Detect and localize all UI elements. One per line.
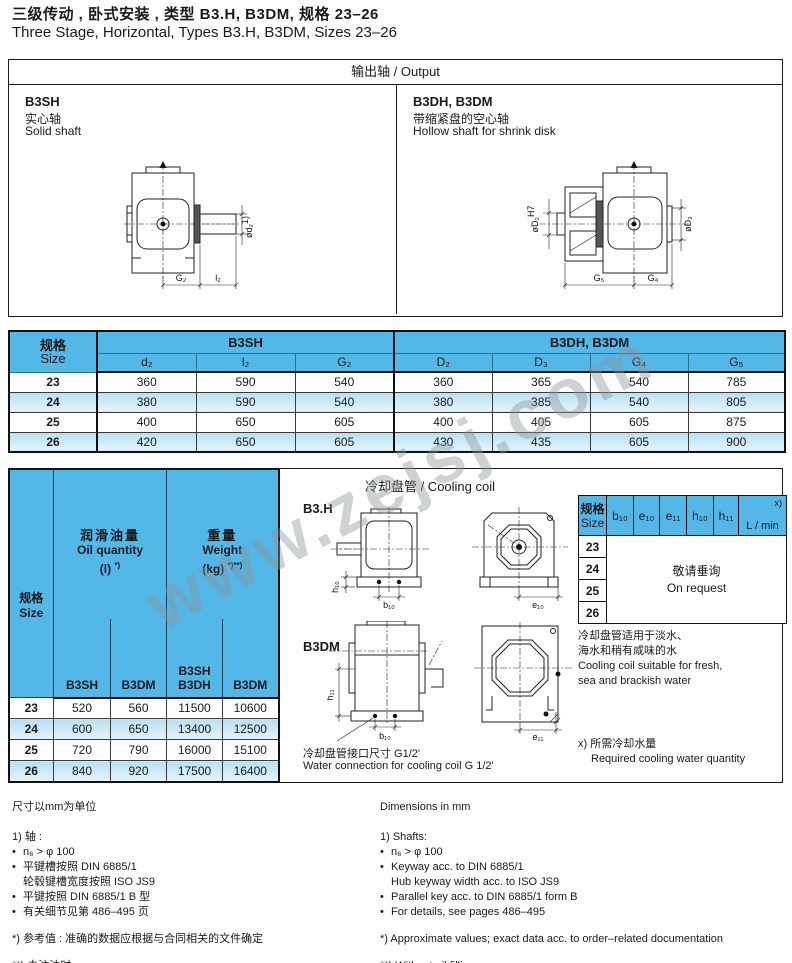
col-header-size: 规格Size bbox=[9, 469, 54, 698]
cell-size: 25 bbox=[579, 580, 607, 602]
shaft-note-head-zh: 1) 轴 : bbox=[12, 830, 372, 845]
cell: 650 bbox=[196, 432, 295, 452]
table-row: 23 敬请垂询On request bbox=[579, 536, 787, 558]
cell-size: 24 bbox=[579, 558, 607, 580]
table-row: 26 840 920 17500 16400 bbox=[9, 761, 279, 782]
cell-size: 24 bbox=[9, 392, 97, 412]
output-section-header: 输出轴 / Output bbox=[9, 60, 782, 85]
col-header-D3: D₃ bbox=[492, 353, 590, 372]
drawing-b3h-side-view: h₁₀ b₁₀ bbox=[329, 507, 434, 609]
footnotes-en: Dimensions in mm 1) Shafts: n₆ > φ 100 K… bbox=[380, 800, 784, 963]
cell: 605 bbox=[590, 432, 688, 452]
label-g2: G₂ bbox=[176, 273, 187, 283]
cell: 380 bbox=[97, 392, 196, 412]
cell: 650 bbox=[111, 719, 167, 740]
cell-size: 25 bbox=[9, 412, 97, 432]
cell: 540 bbox=[590, 372, 688, 392]
col-header-h10: h₁₀ bbox=[687, 496, 714, 536]
group-header-weight: 重量 Weight (kg) *)**) bbox=[167, 469, 279, 619]
cell: 540 bbox=[295, 392, 394, 412]
cell: 435 bbox=[492, 432, 590, 452]
sub-header-b3dm-2: B3DM bbox=[223, 619, 279, 698]
output-shaft-section: 输出轴 / Output B3SH 实心轴 Solid shaft bbox=[8, 59, 783, 317]
table-row: 25 720 790 16000 15100 bbox=[9, 740, 279, 761]
units-note-zh: 尺寸以mm为单位 bbox=[12, 800, 372, 815]
approx-values-note-en: *) Approximate values; exact data acc. t… bbox=[380, 932, 784, 947]
table-row: 23 360 590 540 360 365 540 785 bbox=[9, 372, 785, 392]
type-label-b3dh-b3dm: B3DH, B3DM bbox=[413, 94, 492, 109]
cell: 650 bbox=[196, 412, 295, 432]
cell: 785 bbox=[688, 372, 785, 392]
cooling-coil-table: 规格Size b₁₀ e₁₀ e₁₁ h₁₀ h₁₁ x)L / min 23 … bbox=[578, 495, 787, 624]
sub-header-b3dm: B3DM bbox=[111, 619, 167, 698]
cell: 790 bbox=[111, 740, 167, 761]
footnote-item: 平键槽按照 DIN 6885/1轮毂键槽宽度按照 ISO JS9 bbox=[12, 860, 372, 890]
label-g5: G₅ bbox=[594, 273, 605, 283]
sub-header-b3sh: B3SH bbox=[54, 619, 111, 698]
group-header-oil-quantity: 润滑油量 Oil quantity (l) *) bbox=[54, 469, 167, 619]
label-b10-b3dm: b₁₀ bbox=[379, 731, 391, 741]
page-title-zh: 三级传动 , 卧式安装 , 类型 B3.H, B3DM, 规格 23–26 bbox=[12, 3, 379, 24]
label-b10: b₁₀ bbox=[383, 600, 395, 609]
cell-size: 23 bbox=[579, 536, 607, 558]
cell: 420 bbox=[97, 432, 196, 452]
cell: 805 bbox=[688, 392, 785, 412]
drawing-b3dm-side-view: h₁₁ b₁₀ bbox=[327, 621, 452, 743]
without-oil-note-zh: **) 未注油时 bbox=[12, 959, 372, 963]
cell: 540 bbox=[295, 372, 394, 392]
without-oil-note-en: **) Without oil filling bbox=[380, 959, 784, 963]
cooling-coil-title: 冷却盘管 / Cooling coil bbox=[287, 476, 573, 495]
col-header-d2: d₂ bbox=[97, 353, 196, 372]
dimensions-table: 规格Size B3SH B3DH, B3DM d₂ l₂ G₂ D₂ D₃ G₄… bbox=[8, 330, 786, 453]
cell: 540 bbox=[590, 392, 688, 412]
on-request-cell: 敬请垂询On request bbox=[607, 536, 787, 624]
label-od3: øD₃ bbox=[683, 216, 693, 232]
label-od2-footnote: 1) bbox=[240, 216, 250, 224]
cooling-water-note: 冷却盘管适用于淡水、 海水和稍有咸味的水 Cooling coil suitab… bbox=[578, 629, 722, 689]
label-e10: e₁₀ bbox=[532, 600, 544, 609]
col-header-size: 规格Size bbox=[9, 331, 97, 372]
cell-size: 24 bbox=[9, 719, 54, 740]
type-label-b3sh: B3SH bbox=[25, 94, 60, 109]
label-od2-bore: øD₂ bbox=[530, 217, 540, 233]
cell: 16400 bbox=[223, 761, 279, 782]
cell-size: 26 bbox=[9, 432, 97, 452]
label-e11: e₁₁ bbox=[532, 732, 543, 742]
col-header-size: 规格Size bbox=[579, 496, 607, 536]
cell: 11500 bbox=[167, 698, 223, 719]
col-header-b10: b₁₀ bbox=[607, 496, 634, 536]
cell-size: 25 bbox=[9, 740, 54, 761]
label-h7-tolerance: H7 bbox=[526, 205, 536, 217]
cell: 430 bbox=[394, 432, 492, 452]
col-header-G5: G₅ bbox=[688, 353, 785, 372]
shaft-note-head-en: 1) Shafts: bbox=[380, 830, 784, 845]
cell: 360 bbox=[97, 372, 196, 392]
label-h10: h₁₀ bbox=[330, 581, 340, 593]
cell: 13400 bbox=[167, 719, 223, 740]
output-b3sh-cell: B3SH 实心轴 Solid shaft bbox=[9, 85, 397, 314]
group-header-b3sh: B3SH bbox=[97, 331, 394, 353]
group-header-b3dh-b3dm: B3DH, B3DM bbox=[394, 331, 785, 353]
drawing-b3h-front-view: e₁₀ bbox=[464, 507, 574, 609]
cell: 900 bbox=[688, 432, 785, 452]
col-header-g2: G₂ bbox=[295, 353, 394, 372]
col-header-l2: l₂ bbox=[196, 353, 295, 372]
label-h11: h₁₁ bbox=[327, 689, 335, 700]
cell: 920 bbox=[111, 761, 167, 782]
cell: 15100 bbox=[223, 740, 279, 761]
cell: 840 bbox=[54, 761, 111, 782]
footnote-item: Keyway acc. to DIN 6885/1Hub keyway widt… bbox=[380, 860, 784, 890]
label-od2: ød₂ bbox=[244, 224, 254, 239]
oil-weight-table: 规格Size 润滑油量 Oil quantity (l) *) 重量 Weigh… bbox=[8, 468, 280, 783]
table-row: 24 600 650 13400 12500 bbox=[9, 719, 279, 740]
footnote-item: Parallel key acc. to DIN 6885/1 form B bbox=[380, 890, 784, 905]
drawing-b3sh-solid-shaft: ød₂1) G₂ l₂ bbox=[124, 161, 274, 301]
required-cooling-water-note: x) 所需冷却水量 Required cooling water quantit… bbox=[578, 737, 745, 767]
cell: 385 bbox=[492, 392, 590, 412]
table-row: 26 420 650 605 430 435 605 900 bbox=[9, 432, 785, 452]
cell: 605 bbox=[295, 432, 394, 452]
cell: 10600 bbox=[223, 698, 279, 719]
desc-en-hollow-shaft: Hollow shaft for shrink disk bbox=[413, 124, 556, 138]
cell: 720 bbox=[54, 740, 111, 761]
cell: 16000 bbox=[167, 740, 223, 761]
footnotes-zh: 尺寸以mm为单位 1) 轴 : n₆ > φ 100 平键槽按照 DIN 688… bbox=[12, 800, 372, 963]
cell: 560 bbox=[111, 698, 167, 719]
col-header-G4: G₄ bbox=[590, 353, 688, 372]
output-b3dh-cell: B3DH, B3DM 带缩紧盘的空心轴 Hollow shaft for shr… bbox=[397, 85, 782, 314]
units-note-en: Dimensions in mm bbox=[380, 800, 784, 815]
sub-header-b3sh-b3dh: B3SHB3DH bbox=[167, 619, 223, 698]
col-header-e10: e₁₀ bbox=[634, 496, 660, 536]
cell: 365 bbox=[492, 372, 590, 392]
label-l2: l₂ bbox=[215, 273, 221, 283]
cell-size: 23 bbox=[9, 698, 54, 719]
cell: 400 bbox=[394, 412, 492, 432]
col-header-D2: D₂ bbox=[394, 353, 492, 372]
cell: 17500 bbox=[167, 761, 223, 782]
cell-size: 23 bbox=[9, 372, 97, 392]
footnote-item: n₆ > φ 100 bbox=[380, 845, 784, 860]
desc-en-solid-shaft: Solid shaft bbox=[25, 124, 81, 138]
table-row: 24 380 590 540 380 385 540 805 bbox=[9, 392, 785, 412]
oil-weight-cooling-section: 规格Size 润滑油量 Oil quantity (l) *) 重量 Weigh… bbox=[8, 468, 783, 783]
table-row: 25 400 650 605 400 405 605 875 bbox=[9, 412, 785, 432]
catalog-page: 三级传动 , 卧式安装 , 类型 B3.H, B3DM, 规格 23–26 Th… bbox=[0, 0, 792, 963]
col-header-lmin: x)L / min bbox=[739, 496, 787, 536]
cell: 875 bbox=[688, 412, 785, 432]
footnote-item: For details, see pages 486–495 bbox=[380, 905, 784, 920]
cell: 590 bbox=[196, 372, 295, 392]
label-g4: G₄ bbox=[648, 273, 659, 283]
cell: 360 bbox=[394, 372, 492, 392]
cell-size: 26 bbox=[579, 602, 607, 624]
cell-size: 26 bbox=[9, 761, 54, 782]
footnote-item: n₆ > φ 100 bbox=[12, 845, 372, 860]
page-title-en: Three Stage, Horizontal, Types B3.H, B3D… bbox=[12, 24, 397, 41]
col-header-h11: h₁₁ bbox=[714, 496, 739, 536]
cell: 605 bbox=[295, 412, 394, 432]
svg-text:øD₂H7: øD₂H7 bbox=[526, 205, 540, 232]
cell: 380 bbox=[394, 392, 492, 412]
drawing-b3dm-front-view: e₁₁ bbox=[464, 622, 579, 742]
footnote-item: 平键按照 DIN 6885/1 B 型 bbox=[12, 890, 372, 905]
table-row: 23 520 560 11500 10600 bbox=[9, 698, 279, 719]
water-connection-note-en: Water connection for cooling coil G 1/2' bbox=[303, 760, 494, 772]
footnote-item: 有关细节见第 486–495 页 bbox=[12, 905, 372, 920]
cell: 590 bbox=[196, 392, 295, 412]
cell: 605 bbox=[590, 412, 688, 432]
approx-values-note-zh: *) 参考值 : 准确的数据应根据与合同相关的文件确定 bbox=[12, 932, 372, 947]
cell: 12500 bbox=[223, 719, 279, 740]
drawing-b3dh-hollow-shaft: øD₂H7 øD₃ G₅ G₄ bbox=[525, 161, 695, 301]
col-header-e11: e₁₁ bbox=[660, 496, 687, 536]
cell: 400 bbox=[97, 412, 196, 432]
cell: 405 bbox=[492, 412, 590, 432]
water-connection-note-zh: 冷却盘管接口尺寸 G1/2' bbox=[303, 745, 420, 761]
cell: 520 bbox=[54, 698, 111, 719]
cell: 600 bbox=[54, 719, 111, 740]
